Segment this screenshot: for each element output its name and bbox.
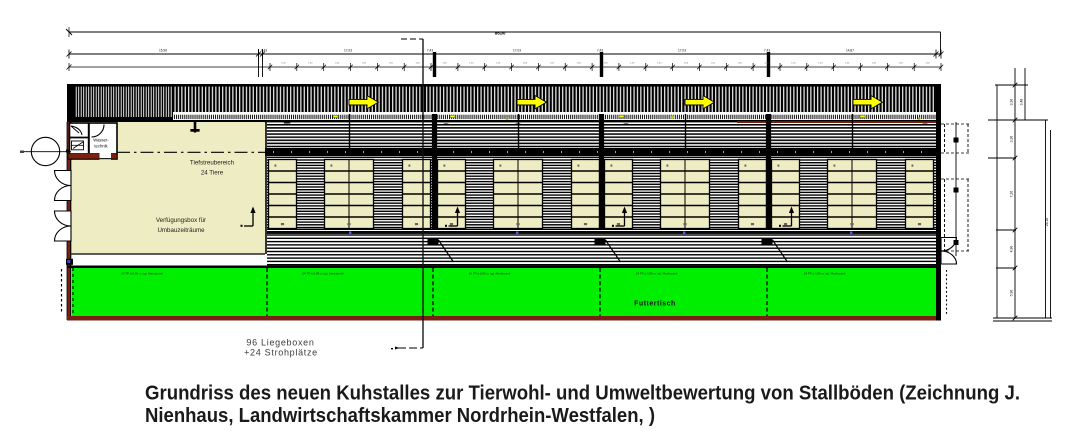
svg-text:7,43: 7,43 <box>427 49 433 53</box>
svg-text:14,87: 14,87 <box>846 49 854 53</box>
svg-text:24 TP à 0,95 m ügl. Marktantei: 24 TP à 0,95 m ügl. Marktanteil <box>804 272 846 276</box>
svg-text:24 Tiere: 24 Tiere <box>201 170 224 177</box>
svg-text:4,96: 4,96 <box>1010 246 1014 253</box>
svg-text:technik: technik <box>94 144 108 149</box>
svg-text:17,03: 17,03 <box>513 49 521 53</box>
svg-text:3,48: 3,48 <box>1020 99 1024 106</box>
svg-text:85,00: 85,00 <box>495 31 506 36</box>
svg-text:3,36: 3,36 <box>1010 136 1014 143</box>
svg-text:17,03: 17,03 <box>344 49 352 53</box>
svg-text:7,43: 7,43 <box>597 49 603 53</box>
svg-text:24 TP à 0,95 m ügl. Marktantei: 24 TP à 0,95 m ügl. Marktanteil <box>636 272 678 276</box>
svg-text:15,96: 15,96 <box>159 49 167 53</box>
svg-text:+24 Strohplätze: +24 Strohplätze <box>244 348 318 358</box>
svg-text:3,36: 3,36 <box>1010 99 1014 106</box>
svg-text:Wasser-: Wasser- <box>93 138 109 143</box>
svg-text:7,43: 7,43 <box>261 49 267 53</box>
svg-text:7,26: 7,26 <box>1010 191 1014 198</box>
svg-text:24 TP à 0,95 m ügl. Marktantei: 24 TP à 0,95 m ügl. Marktanteil <box>302 272 344 276</box>
svg-text:Tiefstreubereich: Tiefstreubereich <box>190 160 235 167</box>
svg-text:17,03: 17,03 <box>678 49 686 53</box>
svg-text:24 TP à 0,95 m ügl. Marktantei: 24 TP à 0,95 m ügl. Marktanteil <box>121 272 163 276</box>
svg-text:Grundriss des neuen Kuhstalles: Grundriss des neuen Kuhstalles zur Tierw… <box>145 383 1020 405</box>
svg-text:Umbauzeiträume: Umbauzeiträume <box>157 227 205 234</box>
svg-text:26,36: 26,36 <box>1045 218 1049 227</box>
svg-text:Futtertisch: Futtertisch <box>634 301 676 308</box>
svg-text:7,43: 7,43 <box>764 49 770 53</box>
svg-text:24 TP à 0,95 m ügl. Marktantei: 24 TP à 0,95 m ügl. Marktanteil <box>469 272 511 276</box>
svg-text:96 Liegeboxen: 96 Liegeboxen <box>246 338 314 348</box>
svg-text:Nienhaus, Landwirtschaftskamme: Nienhaus, Landwirtschaftskammer Nordrhei… <box>145 405 655 427</box>
svg-text:Verfügungsbox für: Verfügungsbox für <box>156 217 206 224</box>
svg-text:5,96: 5,96 <box>1010 290 1014 297</box>
